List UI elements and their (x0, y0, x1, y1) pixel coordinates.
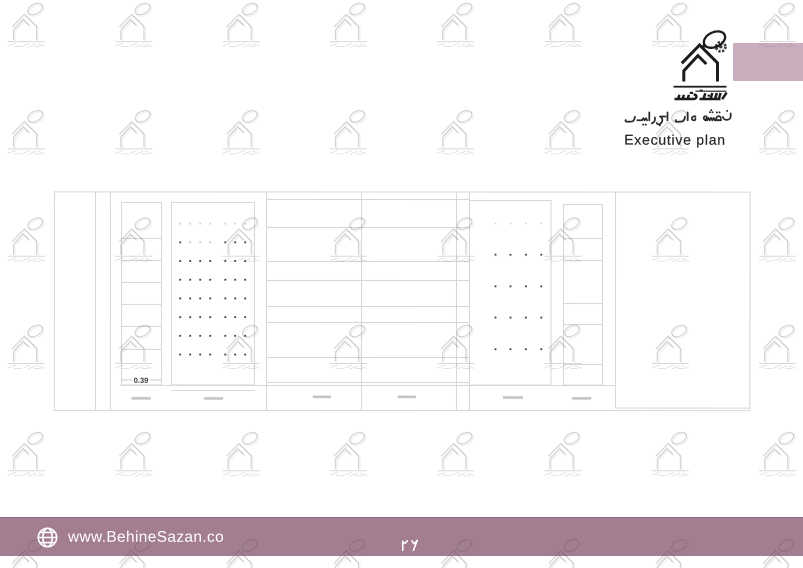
svg-text:Executive plan: Executive plan (624, 132, 726, 148)
svg-text:www.BehineSazan.co: www.BehineSazan.co (67, 529, 224, 546)
